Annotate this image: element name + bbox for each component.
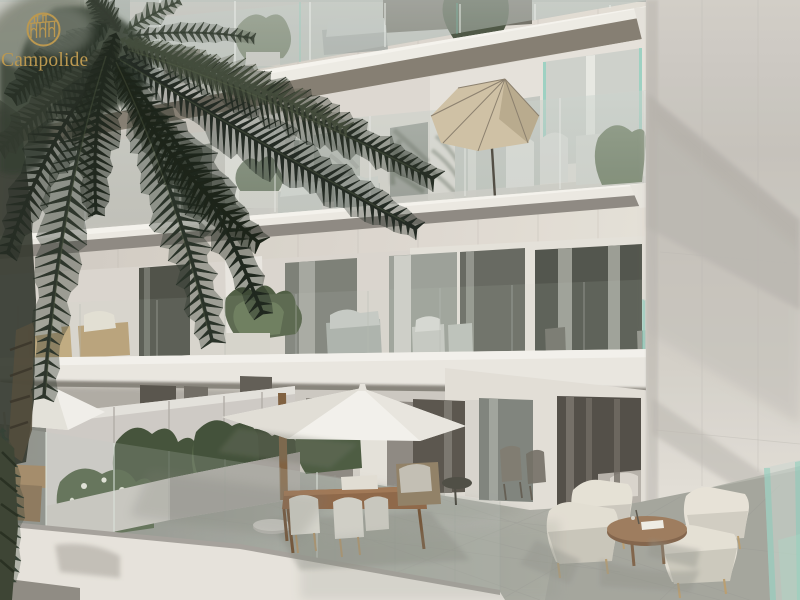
svg-text:Campolide: Campolide [1, 50, 88, 71]
